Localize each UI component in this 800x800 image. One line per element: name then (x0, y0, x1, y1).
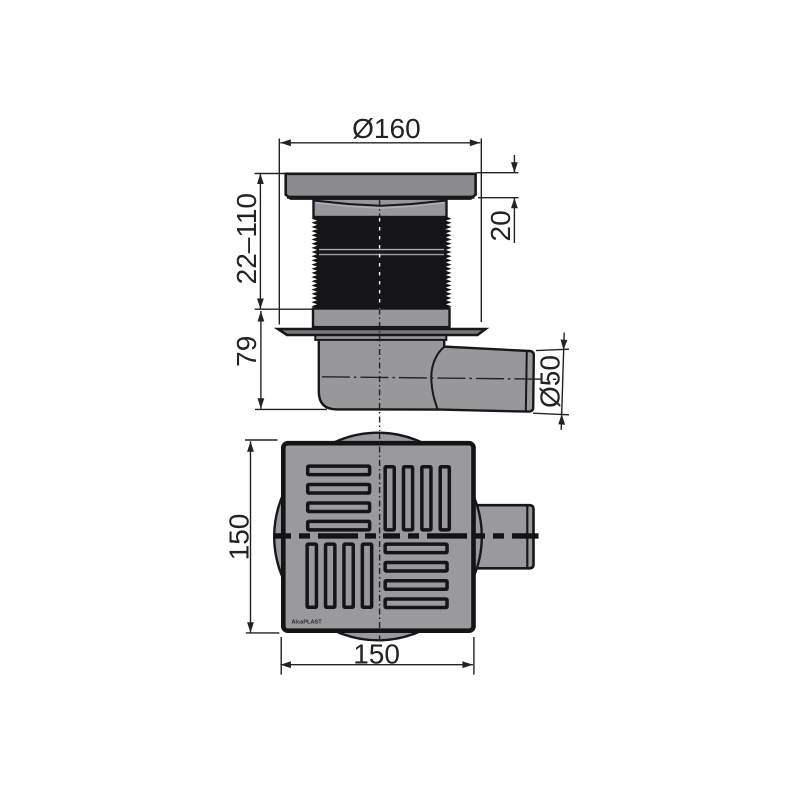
svg-text:AlcaPLAST: AlcaPLAST (292, 620, 323, 626)
svg-text:79: 79 (231, 336, 262, 367)
svg-text:20: 20 (485, 210, 516, 241)
svg-text:22–110: 22–110 (231, 193, 262, 284)
svg-text:Ø50: Ø50 (535, 355, 566, 408)
svg-text:Ø160: Ø160 (352, 113, 421, 144)
svg-text:150: 150 (353, 638, 400, 669)
svg-text:150: 150 (224, 514, 255, 561)
